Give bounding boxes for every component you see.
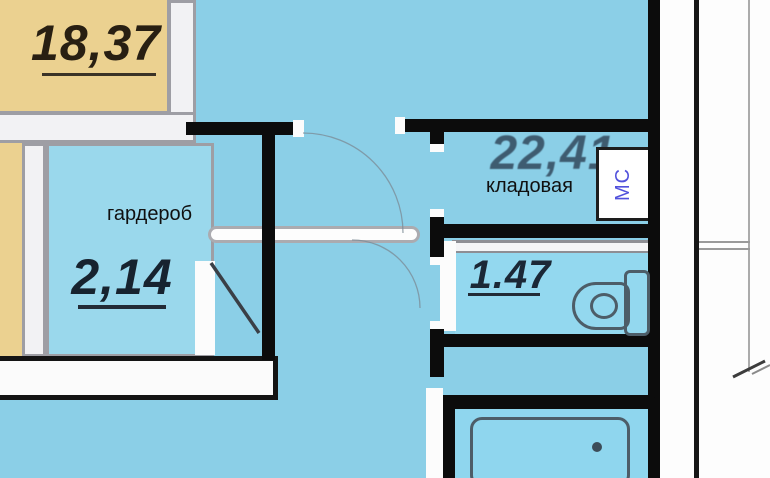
bathtub-drain-icon xyxy=(592,442,602,452)
door-jamb xyxy=(395,117,405,134)
door-jamb xyxy=(430,321,444,329)
area-underline xyxy=(42,73,156,76)
wall xyxy=(443,395,655,409)
wall xyxy=(0,112,196,143)
room-area-label: 1.47 xyxy=(458,255,563,295)
door-jamb xyxy=(293,120,304,137)
plan-margin xyxy=(660,0,770,478)
floor-plan: 18,37 гардероб 2,14 22,41 кладовая МС 1.… xyxy=(0,0,770,478)
wall xyxy=(22,143,46,357)
toilet-icon xyxy=(590,293,618,319)
wall xyxy=(186,122,303,135)
wall xyxy=(430,329,444,377)
riser-box: МС xyxy=(596,147,652,221)
room-left-strip xyxy=(0,143,22,357)
room-name-label: гардероб xyxy=(107,203,192,226)
dimension-tick xyxy=(699,248,750,250)
doorway xyxy=(195,261,215,355)
room-area-label: 2,14 xyxy=(62,252,182,302)
outer-wall-line xyxy=(694,0,699,478)
wall xyxy=(208,226,420,243)
door-jamb xyxy=(430,209,444,217)
wall xyxy=(0,356,278,400)
dimension-line xyxy=(748,0,750,372)
area-underline xyxy=(468,293,540,296)
area-underline xyxy=(78,305,166,309)
wall xyxy=(452,240,650,254)
wall xyxy=(262,122,275,360)
wall xyxy=(430,216,444,260)
wall xyxy=(440,334,660,347)
doorway xyxy=(426,388,443,478)
room-name-label: кладовая xyxy=(486,175,573,198)
door-jamb xyxy=(430,144,444,152)
riser-label: МС xyxy=(612,167,635,200)
room-area-label: 18,37 xyxy=(26,18,166,68)
wall xyxy=(437,224,652,238)
bathtub-icon xyxy=(470,417,630,478)
door-jamb xyxy=(430,257,444,265)
dimension-tick xyxy=(699,241,750,243)
wall xyxy=(430,130,444,145)
